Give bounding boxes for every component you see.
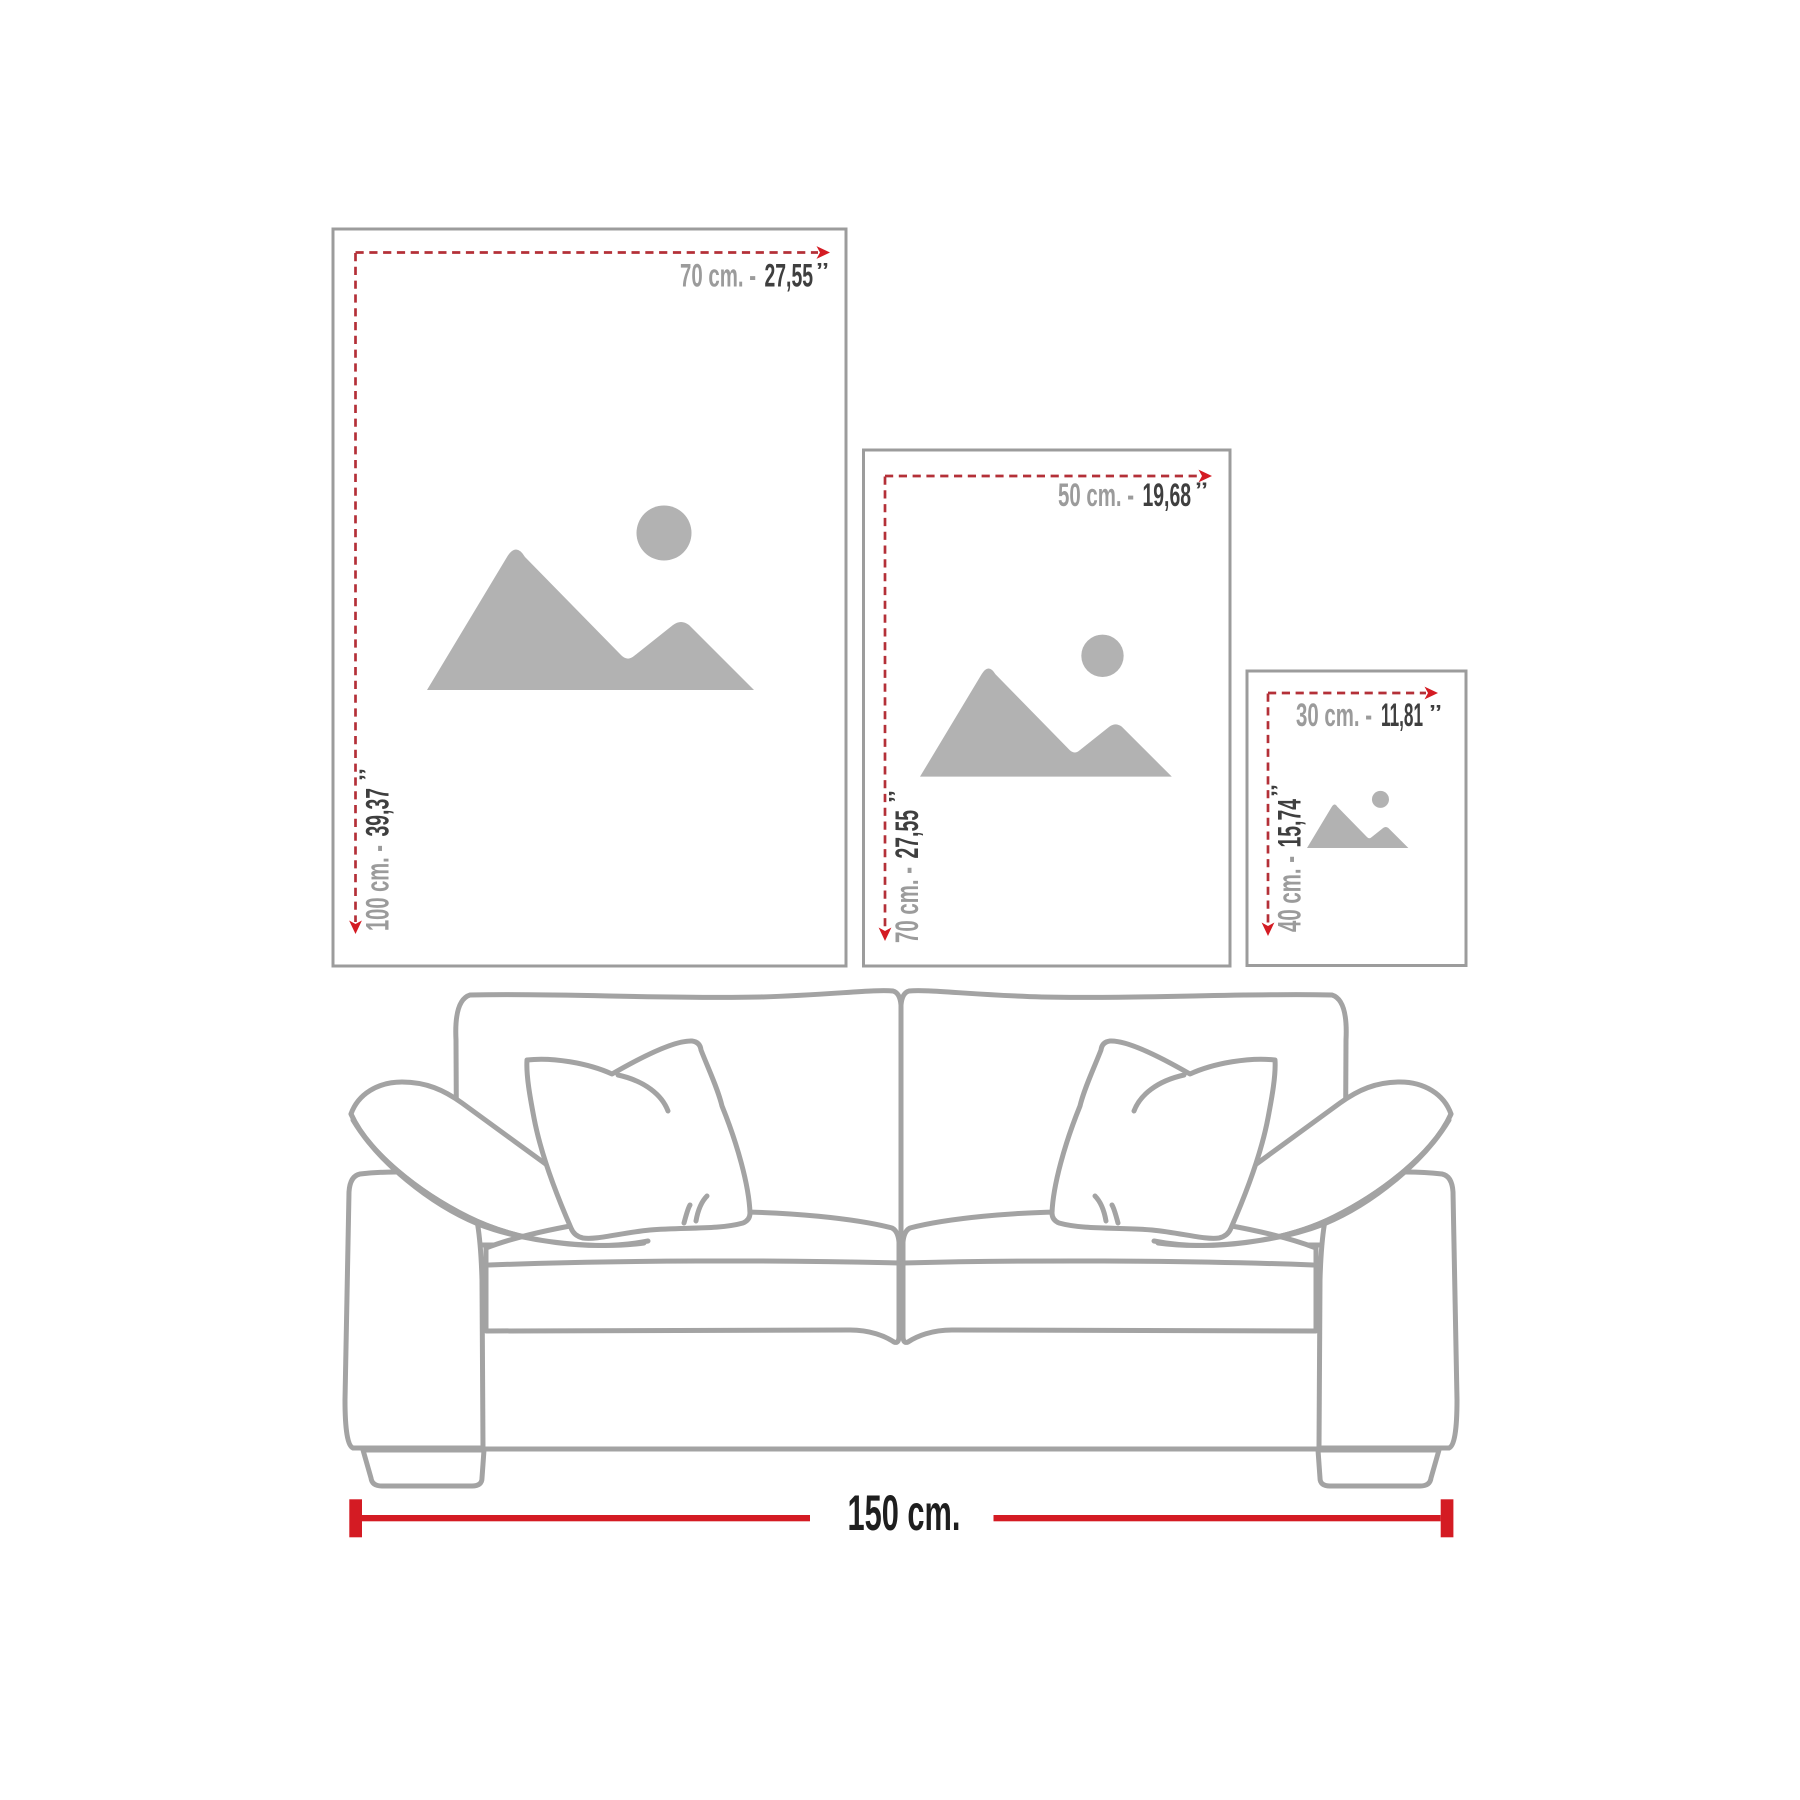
svg-text:40 cm. -: 40 cm. - [1272,856,1308,932]
svg-text:’’: ’’ [1269,784,1291,797]
svg-text:’’: ’’ [1429,702,1442,724]
svg-text:70 cm. -: 70 cm. - [889,867,925,943]
svg-text:’’: ’’ [886,790,908,803]
svg-text:’’: ’’ [357,768,379,781]
svg-text:100 cm. -: 100 cm. - [360,845,396,931]
svg-text:’’: ’’ [816,260,829,282]
svg-text:’’: ’’ [1195,480,1208,502]
svg-text:27,55: 27,55 [765,258,814,294]
svg-text:70 cm. -: 70 cm. - [680,258,756,294]
svg-text:150 cm.: 150 cm. [848,1485,961,1541]
svg-text:27,55: 27,55 [889,810,925,859]
svg-text:50 cm. -: 50 cm. - [1058,477,1134,513]
svg-text:15,74: 15,74 [1272,799,1308,848]
svg-text:19,68: 19,68 [1143,477,1192,513]
svg-text:30 cm. -: 30 cm. - [1296,697,1372,733]
svg-text:39,37: 39,37 [360,788,396,837]
svg-text:11,81: 11,81 [1381,697,1423,733]
